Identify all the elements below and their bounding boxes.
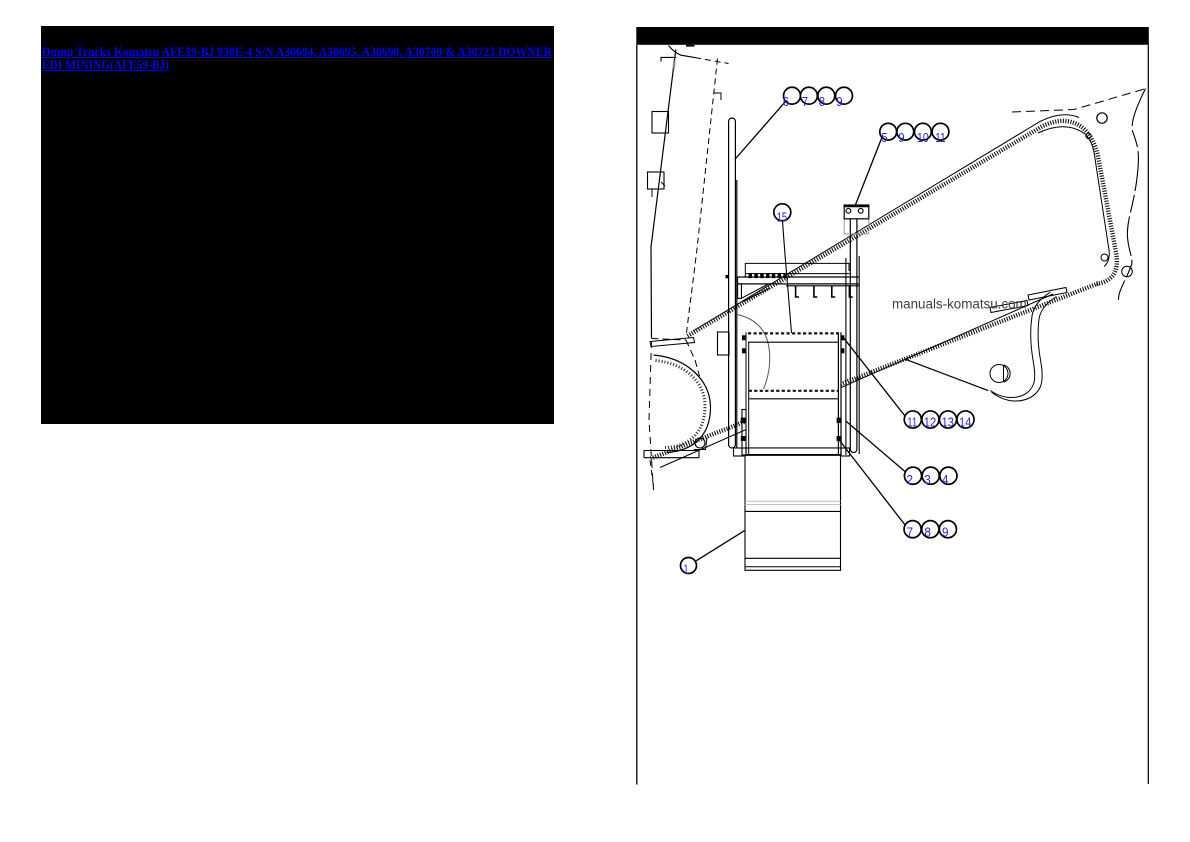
- svg-text:12: 12: [924, 414, 936, 429]
- svg-text:8: 8: [924, 524, 931, 539]
- svg-text:2: 2: [907, 472, 914, 487]
- svg-text:13: 13: [942, 414, 954, 429]
- svg-text:11: 11: [907, 414, 917, 429]
- svg-text:6: 6: [783, 94, 789, 109]
- svg-text:9: 9: [836, 94, 842, 109]
- svg-text:9: 9: [942, 524, 949, 539]
- svg-text:3: 3: [924, 472, 931, 487]
- svg-text:1: 1: [684, 562, 689, 577]
- svg-text:5: 5: [881, 130, 887, 145]
- svg-text:7: 7: [802, 94, 808, 109]
- svg-text:manuals-komatsu.com: manuals-komatsu.com: [892, 297, 1027, 312]
- svg-text:4: 4: [942, 472, 949, 487]
- svg-text:7: 7: [907, 524, 914, 539]
- svg-text:11: 11: [935, 130, 945, 145]
- svg-text:15: 15: [777, 210, 787, 225]
- svg-text:9: 9: [898, 130, 904, 145]
- svg-text:8: 8: [819, 94, 825, 109]
- svg-text:10: 10: [917, 130, 929, 145]
- svg-text:14: 14: [959, 414, 971, 429]
